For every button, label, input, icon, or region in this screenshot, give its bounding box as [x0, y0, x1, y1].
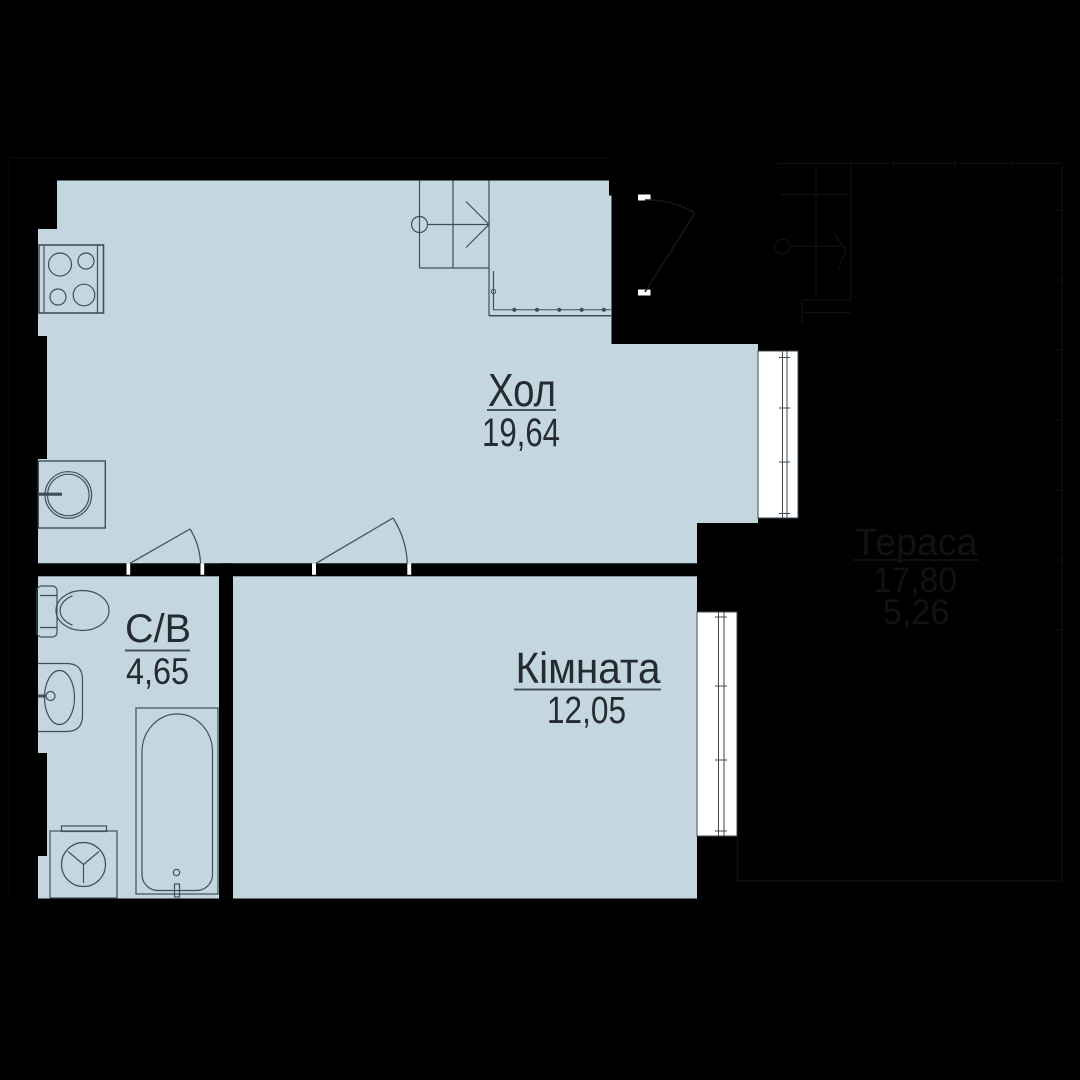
svg-text:Кімната: Кімната: [516, 644, 661, 693]
svg-text:12,05: 12,05: [547, 690, 626, 732]
svg-text:19,64: 19,64: [482, 411, 560, 455]
svg-text:С/В: С/В: [125, 607, 191, 651]
svg-text:Хол: Хол: [488, 364, 556, 416]
svg-text:5,26: 5,26: [883, 593, 950, 632]
svg-text:4,65: 4,65: [126, 651, 189, 692]
svg-text:Тераса: Тераса: [855, 522, 979, 564]
